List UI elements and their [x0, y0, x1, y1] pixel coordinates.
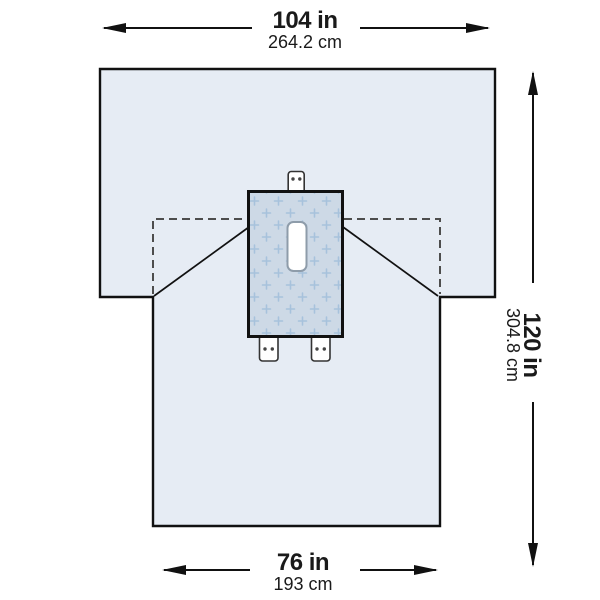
tab-hole	[263, 347, 266, 350]
dimension-right-metric: 304.8 cm	[503, 308, 523, 382]
tab-hole	[271, 347, 274, 350]
tab-hole	[323, 347, 326, 350]
dimension-right: 120 in 304.8 cm	[503, 73, 545, 565]
tab-hole	[291, 177, 294, 180]
fenestration	[288, 222, 307, 271]
dimension-top-metric: 264.2 cm	[268, 32, 342, 52]
tab-hole	[315, 347, 318, 350]
dimension-top-imperial: 104 in	[272, 7, 337, 34]
tab-hole	[298, 177, 301, 180]
diagram-svg: 104 in 264.2 cm 120 in 304.8 cm 76 in 19…	[0, 0, 600, 600]
dimension-bottom-imperial: 76 in	[277, 549, 329, 576]
dimension-top: 104 in 264.2 cm	[104, 7, 488, 52]
drape-dimension-diagram: 104 in 264.2 cm 120 in 304.8 cm 76 in 19…	[0, 0, 600, 600]
dimension-bottom-metric: 193 cm	[273, 574, 332, 594]
dimension-bottom: 76 in 193 cm	[164, 549, 436, 594]
